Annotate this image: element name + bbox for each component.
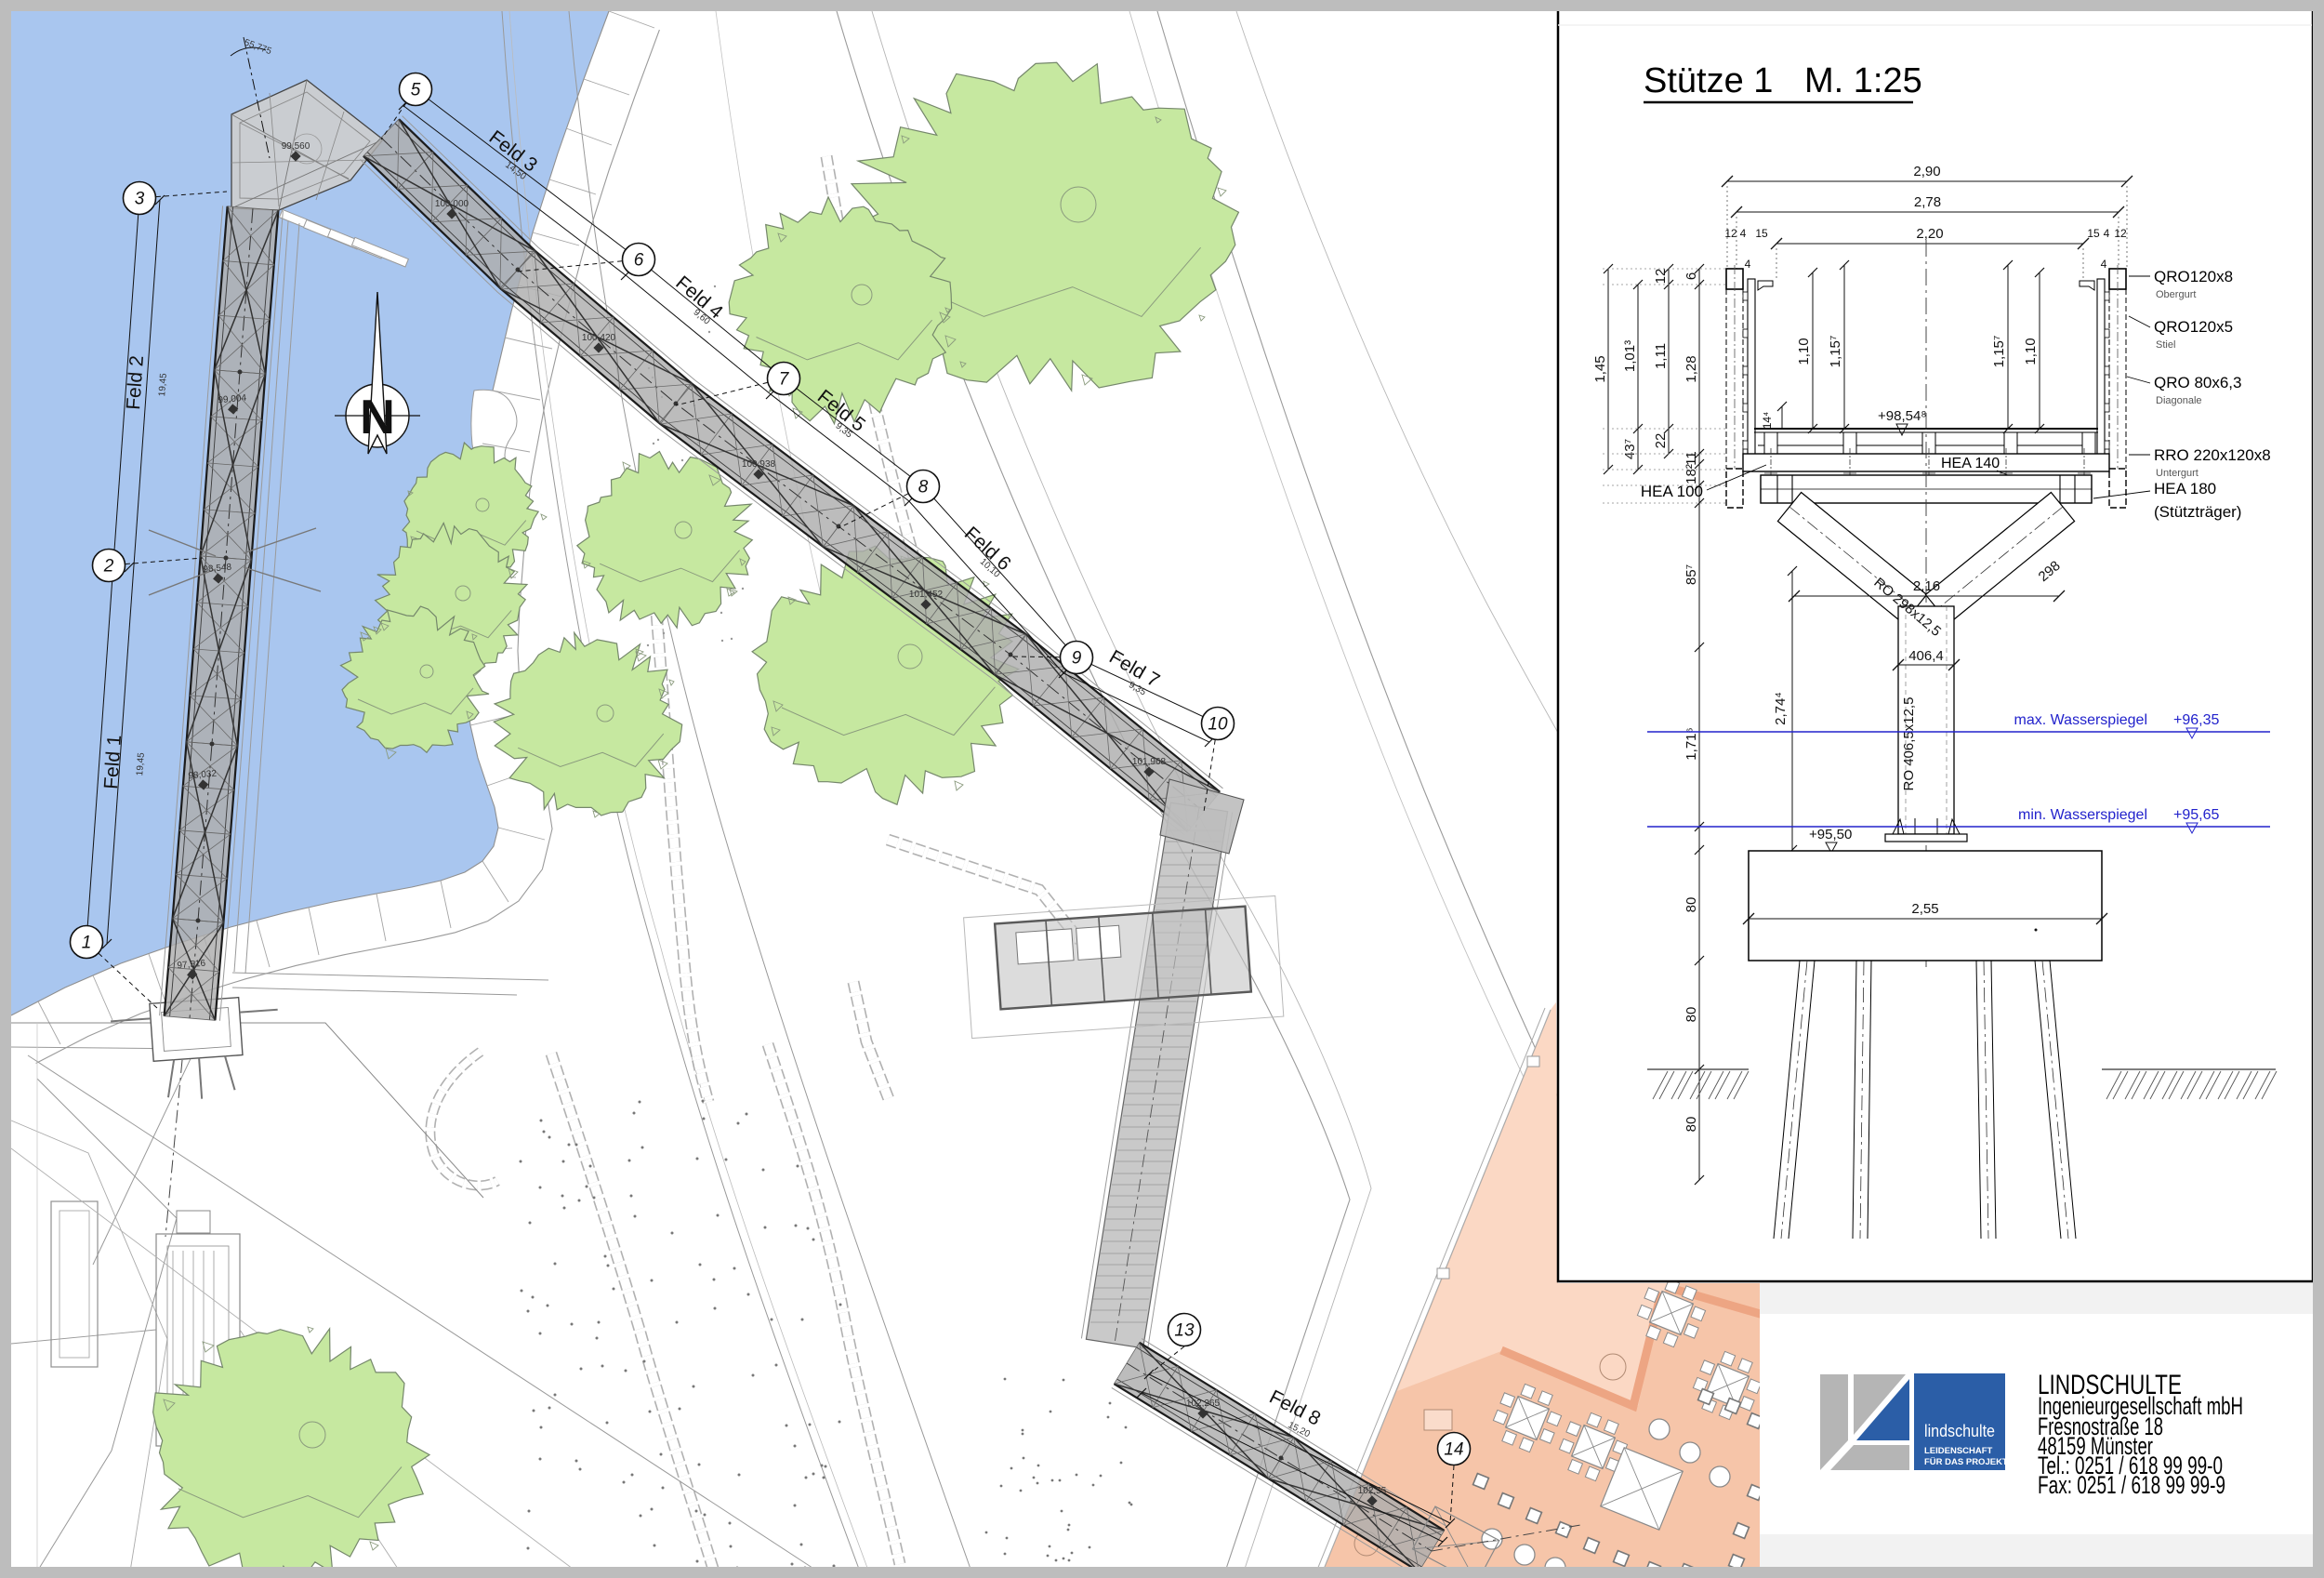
svg-text:4: 4 bbox=[1745, 258, 1751, 271]
svg-text:101,452: 101,452 bbox=[909, 590, 944, 600]
svg-text:102,55: 102,55 bbox=[1358, 1486, 1387, 1496]
svg-text:N: N bbox=[360, 391, 395, 444]
svg-text:15: 15 bbox=[2087, 227, 2100, 240]
svg-text:14⁴: 14⁴ bbox=[1761, 412, 1774, 430]
svg-text:101,968: 101,968 bbox=[1132, 757, 1167, 767]
svg-text:1: 1 bbox=[82, 934, 92, 953]
svg-text:+98,54⁸: +98,54⁸ bbox=[1878, 408, 1927, 424]
svg-text:2,78: 2,78 bbox=[1914, 194, 1941, 210]
svg-text:3: 3 bbox=[135, 190, 145, 209]
svg-text:19,45: 19,45 bbox=[157, 373, 169, 397]
svg-text:Diagonale: Diagonale bbox=[2156, 395, 2202, 406]
svg-text:HEA 100: HEA 100 bbox=[1641, 483, 1703, 500]
svg-text:M. 1:25: M. 1:25 bbox=[1804, 61, 1922, 100]
svg-text:2: 2 bbox=[103, 557, 114, 577]
svg-text:7: 7 bbox=[779, 370, 790, 390]
svg-text:43⁷: 43⁷ bbox=[1622, 439, 1638, 459]
svg-text:+95,50: +95,50 bbox=[1809, 827, 1852, 842]
svg-text:1,01³: 1,01³ bbox=[1622, 340, 1638, 372]
svg-text:LEIDENSCHAFT: LEIDENSCHAFT bbox=[1924, 1446, 1993, 1456]
svg-text:12: 12 bbox=[1724, 227, 1737, 240]
svg-text:6: 6 bbox=[1684, 272, 1699, 280]
svg-text:2,74⁴: 2,74⁴ bbox=[1773, 692, 1789, 725]
svg-text:lindschulte: lindschulte bbox=[1924, 1422, 1995, 1440]
svg-text:min. Wasserspiegel: min. Wasserspiegel bbox=[2018, 807, 2147, 823]
svg-text:80: 80 bbox=[1684, 897, 1699, 913]
svg-text:Obergurt: Obergurt bbox=[2156, 289, 2196, 300]
svg-text:(Stützträger): (Stützträger) bbox=[2154, 503, 2241, 521]
svg-text:10: 10 bbox=[1208, 715, 1228, 735]
svg-text:18²: 18² bbox=[1684, 464, 1699, 484]
svg-text:1,15⁷: 1,15⁷ bbox=[1828, 336, 1843, 368]
svg-text:99,560: 99,560 bbox=[282, 141, 310, 152]
svg-text:2,20: 2,20 bbox=[1916, 226, 1943, 242]
svg-text:11: 11 bbox=[1684, 451, 1699, 466]
svg-text:RRO 220x120x8: RRO 220x120x8 bbox=[2154, 446, 2271, 464]
svg-text:Feld 2: Feld 2 bbox=[123, 355, 148, 411]
svg-text:1,10: 1,10 bbox=[2023, 338, 2039, 365]
svg-text:+96,35: +96,35 bbox=[2173, 712, 2219, 728]
svg-text:2,16: 2,16 bbox=[1913, 578, 1940, 594]
svg-text:12: 12 bbox=[2114, 227, 2127, 240]
svg-text:QRO120x8: QRO120x8 bbox=[2154, 268, 2233, 285]
svg-text:100,000: 100,000 bbox=[435, 199, 469, 209]
svg-text:Untergurt: Untergurt bbox=[2156, 468, 2199, 479]
svg-text:12: 12 bbox=[1653, 269, 1669, 285]
svg-text:1,15⁷: 1,15⁷ bbox=[1991, 336, 2007, 368]
svg-text:+95,65: +95,65 bbox=[2173, 807, 2219, 823]
svg-text:1,10: 1,10 bbox=[1796, 338, 1812, 365]
svg-text:2,55: 2,55 bbox=[1911, 901, 1938, 917]
svg-text:FÜR DAS PROJEKT: FÜR DAS PROJEKT bbox=[1924, 1457, 2008, 1467]
svg-text:15: 15 bbox=[1755, 227, 1768, 240]
svg-text:Feld 1: Feld 1 bbox=[100, 735, 125, 790]
svg-text:22: 22 bbox=[1653, 433, 1669, 449]
svg-text:HEA 180: HEA 180 bbox=[2154, 480, 2216, 497]
svg-text:14: 14 bbox=[1444, 1440, 1463, 1460]
svg-text:1,11: 1,11 bbox=[1653, 343, 1669, 369]
svg-text:QRO 80x6,3: QRO 80x6,3 bbox=[2154, 374, 2242, 391]
svg-text:100,420: 100,420 bbox=[582, 333, 616, 343]
svg-text:HEA 140: HEA 140 bbox=[1941, 456, 2000, 471]
svg-text:102,265: 102,265 bbox=[1186, 1399, 1221, 1409]
svg-text:2,90: 2,90 bbox=[1913, 164, 1940, 179]
svg-text:80: 80 bbox=[1684, 1007, 1699, 1023]
svg-text:4: 4 bbox=[2101, 258, 2107, 271]
svg-text:1,45: 1,45 bbox=[1592, 355, 1608, 382]
svg-text:5: 5 bbox=[411, 81, 421, 100]
svg-text:4: 4 bbox=[1740, 227, 1747, 240]
svg-text:406,4: 406,4 bbox=[1908, 648, 1944, 664]
svg-text:QRO120x5: QRO120x5 bbox=[2154, 318, 2233, 336]
svg-text:8: 8 bbox=[918, 478, 929, 497]
svg-text:4: 4 bbox=[2104, 227, 2110, 240]
svg-text:100,938: 100,938 bbox=[742, 459, 776, 470]
svg-text:19,45: 19,45 bbox=[135, 752, 147, 776]
svg-text:9: 9 bbox=[1072, 649, 1082, 669]
svg-text:13: 13 bbox=[1174, 1321, 1195, 1341]
svg-text:85⁷: 85⁷ bbox=[1684, 564, 1699, 585]
svg-text:RO 406,5x12,5: RO 406,5x12,5 bbox=[1901, 697, 1917, 791]
svg-text:6: 6 bbox=[634, 251, 644, 271]
svg-text:80: 80 bbox=[1684, 1117, 1699, 1133]
svg-text:max. Wasserspiegel: max. Wasserspiegel bbox=[2014, 712, 2147, 728]
svg-text:Stiel: Stiel bbox=[2156, 339, 2175, 351]
svg-text:Fax: 0251 / 618 99 99-9: Fax: 0251 / 618 99 99-9 bbox=[2038, 1471, 2225, 1499]
svg-text:Stütze 1: Stütze 1 bbox=[1644, 61, 1773, 100]
svg-text:1,28: 1,28 bbox=[1684, 355, 1699, 382]
